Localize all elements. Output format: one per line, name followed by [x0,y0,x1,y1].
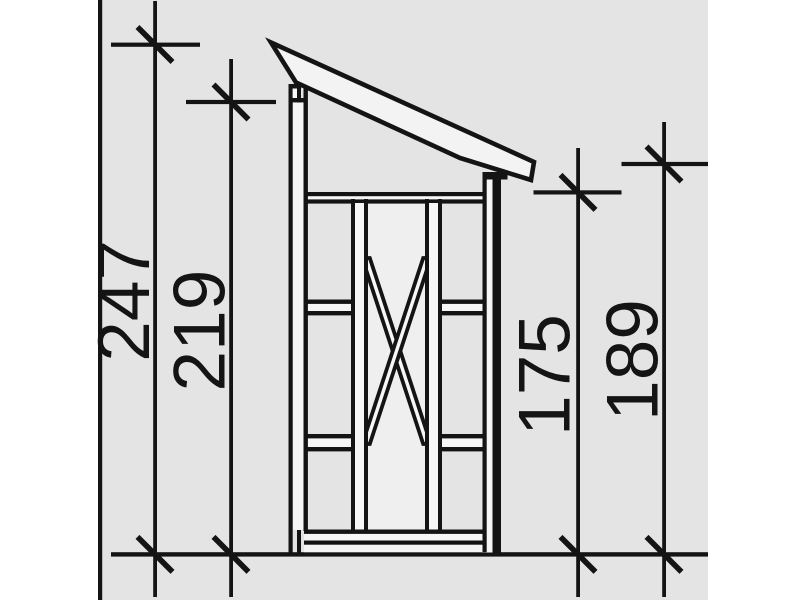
svg-text:247: 247 [84,240,165,362]
svg-text:175: 175 [505,314,586,436]
svg-text:219: 219 [159,270,240,392]
svg-text:189: 189 [593,299,674,421]
